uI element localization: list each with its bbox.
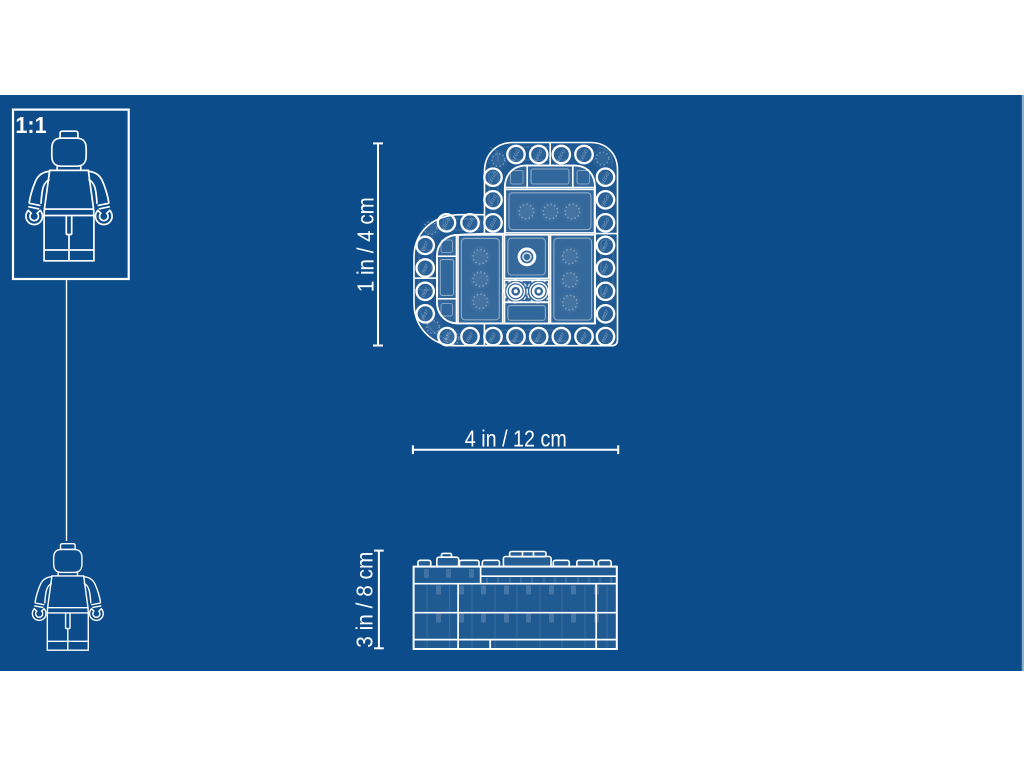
svg-text:4 in / 12 cm: 4 in / 12 cm — [465, 425, 567, 451]
svg-text:3 in / 8 cm: 3 in / 8 cm — [351, 552, 377, 648]
svg-text:1 in / 4 cm: 1 in / 4 cm — [353, 197, 379, 292]
svg-text:1:1: 1:1 — [15, 112, 46, 138]
